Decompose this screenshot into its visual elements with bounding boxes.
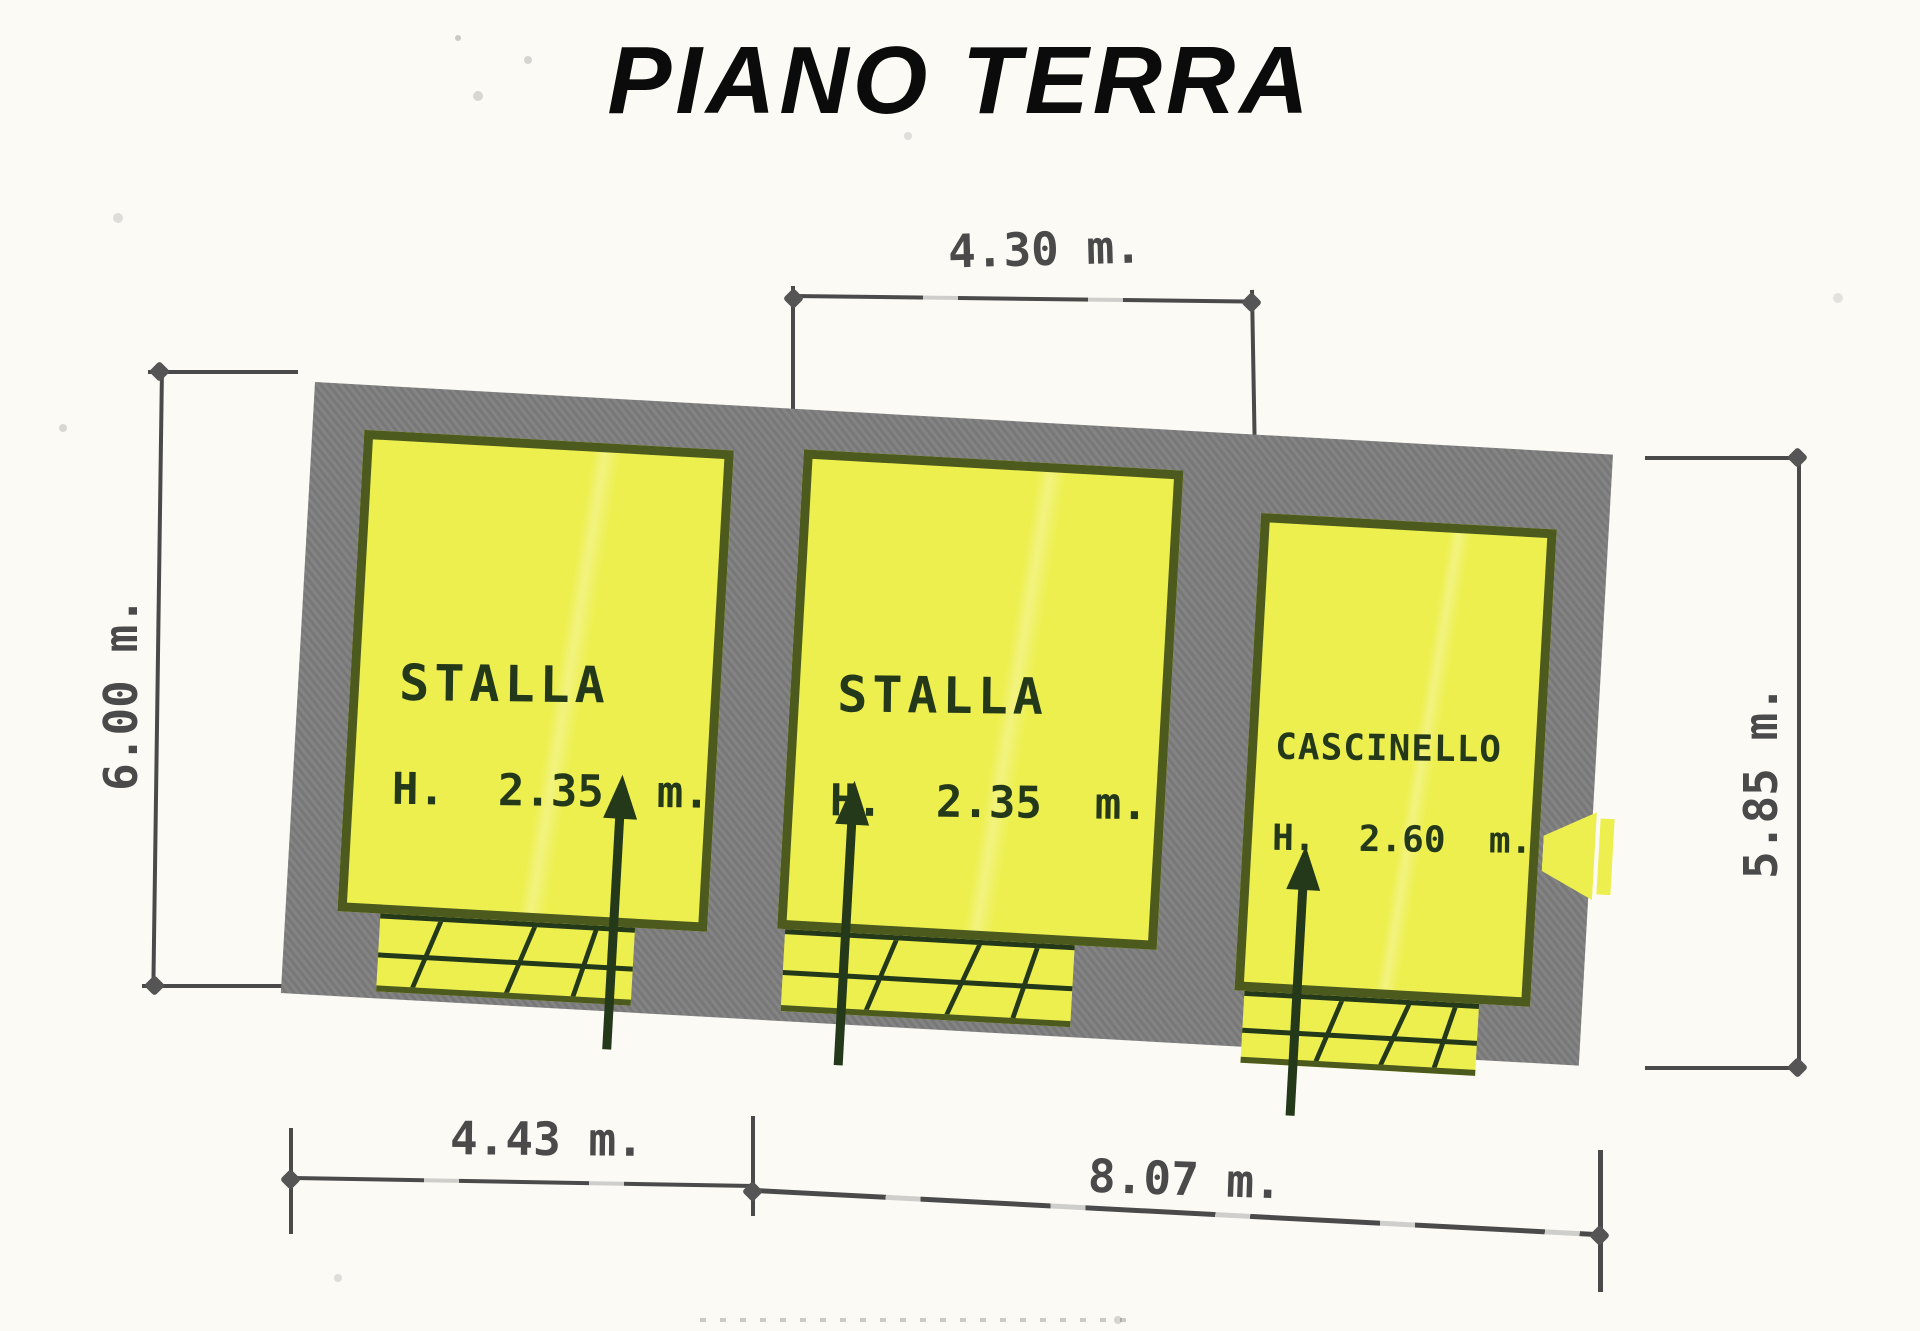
dim-label-right-height: 5.85 m. xyxy=(1734,662,1786,902)
dim-tick-left-top xyxy=(148,370,298,374)
arrow-up-icon xyxy=(603,774,639,820)
scanned-floorplan-page: PIANO TERRA 4.30 m. 6.00 m. 5.85 m. 4.43… xyxy=(0,0,1920,1331)
room-height: H. 2.35 m. xyxy=(392,764,710,819)
dim-label-bottom-left-width: 4.43 m. xyxy=(450,1111,644,1167)
room-cascinello: CASCINELLO H. 2.60 m. xyxy=(1234,513,1556,1007)
dim-tick-right-bottom xyxy=(1645,1066,1803,1070)
room-name: STALLA xyxy=(837,665,1150,727)
dim-dot-left-bottom xyxy=(144,975,165,996)
room-stalla-2: STALLA H. 2.35 m. xyxy=(777,449,1183,949)
dim-label-bottom-right-width: 8.07 m. xyxy=(1087,1149,1283,1210)
side-door-cascinello xyxy=(1540,809,1597,900)
entrance-steps-3 xyxy=(1240,991,1479,1076)
dim-dot-right-top xyxy=(1787,447,1808,468)
entrance-steps-1 xyxy=(376,913,635,1005)
dim-tick-right-top xyxy=(1645,456,1803,460)
room-stalla-1: STALLA H. 2.35 m. xyxy=(338,430,734,932)
dim-line-left xyxy=(151,368,164,988)
dim-line-right xyxy=(1797,455,1801,1073)
room-height: H. 2.35 m. xyxy=(830,775,1148,830)
dim-tick-top-right xyxy=(1250,290,1257,448)
dim-dot-bottom-a xyxy=(280,1169,301,1190)
dim-label-left-height: 6.00 m. xyxy=(94,574,146,814)
dim-tick-bottom-c xyxy=(1598,1150,1603,1292)
entrance-steps-2 xyxy=(781,929,1075,1027)
step-tread-line xyxy=(378,952,633,971)
side-door-outer-sliver xyxy=(1596,818,1614,895)
room-name: CASCINELLO xyxy=(1275,727,1534,771)
dim-tick-left-bottom xyxy=(142,984,292,988)
room-label-block: STALLA H. 2.35 m. xyxy=(829,627,1150,868)
building-plan: STALLA H. 2.35 m. STALLA H. 2.35 m. CASC… xyxy=(281,382,1613,1066)
dim-line-bottom-left xyxy=(294,1176,754,1188)
page-title: PIANO TERRA xyxy=(607,26,1312,136)
dim-dot-top-right xyxy=(1241,292,1262,313)
dim-dot-right-bottom xyxy=(1787,1057,1808,1078)
room-label-block: STALLA H. 2.35 m. xyxy=(391,616,712,857)
scan-specks xyxy=(455,35,461,41)
dim-label-top-width: 4.30 m. xyxy=(947,219,1142,278)
arrow-up-icon xyxy=(1286,845,1322,891)
dim-dot-left-top xyxy=(149,361,170,382)
scan-noise-strip xyxy=(700,1318,1130,1322)
dim-dot-bottom-c xyxy=(1589,1225,1610,1246)
dim-line-top xyxy=(793,294,1255,304)
arrow-up-icon xyxy=(835,780,871,826)
room-name: STALLA xyxy=(399,654,712,716)
dim-dot-top-left xyxy=(783,288,804,309)
